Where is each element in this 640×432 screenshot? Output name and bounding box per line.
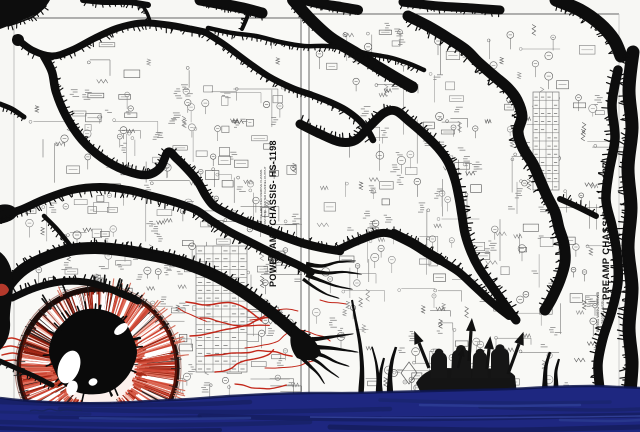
svg-text:POWER AMP CHASSIS- HS-1198: POWER AMP CHASSIS- HS-1198 [268,140,278,287]
svg-text:BOTTOM PANEL. CENTER CHANNEL O: BOTTOM PANEL. CENTER CHANNEL OUTPUT [263,166,267,232]
